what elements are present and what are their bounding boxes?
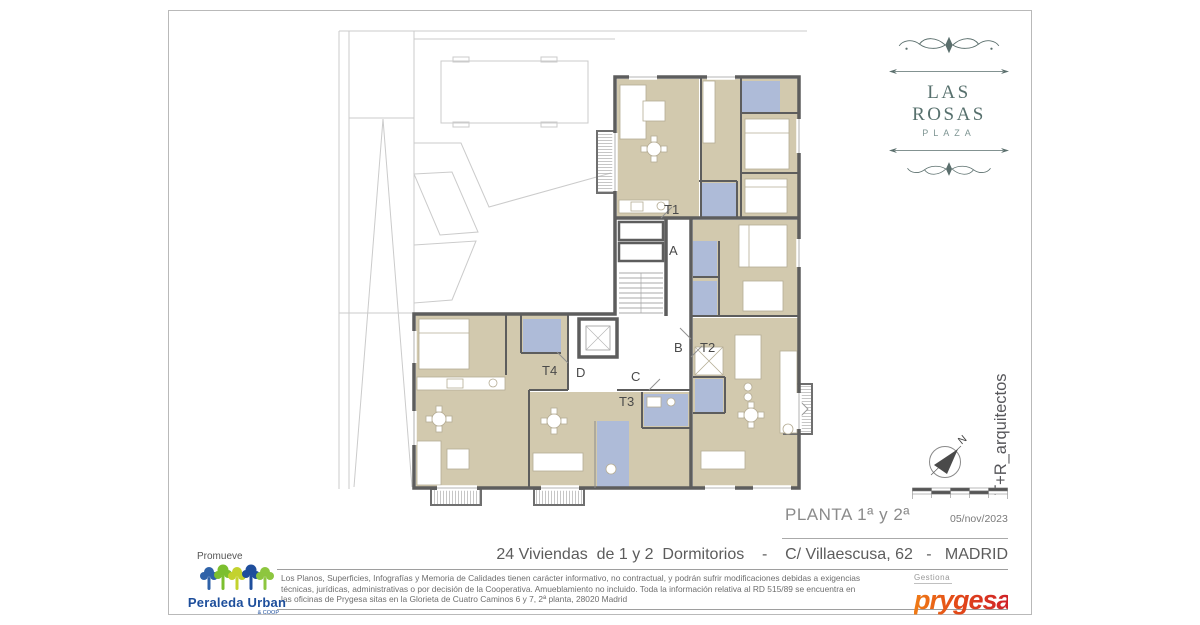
label-d: D (576, 365, 585, 380)
brand-tagline: PLAZA (887, 128, 1011, 138)
page: T1 A B T2 C T3 T4 D L (0, 0, 1200, 625)
label-a: A (669, 243, 678, 258)
bottom-rule (277, 609, 1008, 610)
floor-plan: T1 A B T2 C T3 T4 D (331, 21, 841, 513)
project-description: 24 Viviendas de 1 y 2 Dormitorios - C/ V… (399, 546, 1008, 564)
brand-logo: LAS ROSAS PLAZA (887, 33, 1011, 184)
label-t1: T1 (664, 202, 679, 217)
disclaimer-line-2: técnicas, jurídicas, administrativas o p… (281, 584, 921, 595)
label-c: C (631, 369, 640, 384)
manager-name: prygesa (914, 585, 1008, 615)
label-b: B (674, 340, 683, 355)
plan-sheet: T1 A B T2 C T3 T4 D L (168, 10, 1032, 615)
legal-disclaimer: Los Planos, Superficies, Infografías y M… (281, 573, 921, 605)
divider-bottom-icon (889, 147, 1009, 154)
brand-name: LAS ROSAS (887, 82, 1011, 126)
divider-top-icon (889, 68, 1009, 75)
label-t2: T2 (700, 340, 715, 355)
architect-signature-text: T+R_arquitectos (992, 363, 1011, 495)
disclaimer-line-3: las oficinas de Prygesa sitas en la Glor… (281, 594, 921, 605)
plan-title: PLANTA 1ª y 2ª (785, 505, 910, 525)
peraleda-trees-icon (187, 562, 287, 592)
label-t3: T3 (619, 394, 634, 409)
north-label: N (956, 434, 970, 447)
flourish-bottom-icon (889, 159, 1009, 179)
architect-signature: T+R_arquitectos (992, 363, 1012, 495)
scale-bar (912, 487, 1008, 501)
mid-rule (277, 569, 1008, 570)
manager-label: Gestiona (914, 573, 952, 584)
promoter-label: Promueve (197, 551, 287, 562)
manager-block: Gestiona prygesa (914, 567, 1008, 615)
label-t4: T4 (542, 363, 557, 378)
promoter-name: Peraleda Urban (187, 595, 287, 610)
flourish-top-icon (889, 33, 1009, 57)
disclaimer-line-1: Los Planos, Superficies, Infografías y M… (281, 573, 921, 584)
plan-date: 05/nov/2023 (950, 513, 1008, 525)
title-rule (782, 538, 1008, 539)
promoter-block: Promueve Peraleda Urban & COOP (187, 551, 287, 616)
promoter-suffix: & COOP (187, 610, 279, 616)
north-compass-icon: N (926, 434, 972, 480)
